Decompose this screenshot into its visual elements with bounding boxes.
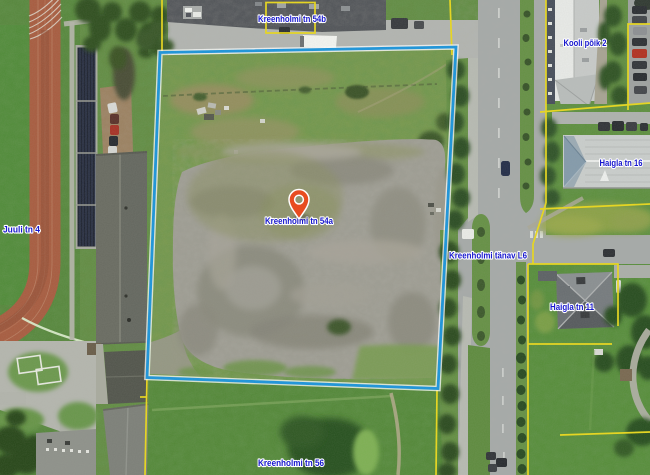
svg-text:Kooli põik 2: Kooli põik 2	[564, 38, 607, 48]
svg-text:Kreenholmi tn 54b: Kreenholmi tn 54b	[258, 14, 326, 24]
svg-text:Juuli tn 4: Juuli tn 4	[3, 225, 40, 235]
svg-text:Haigla tn 16: Haigla tn 16	[600, 158, 643, 168]
svg-text:Kreenholmi tn 56: Kreenholmi tn 56	[258, 458, 324, 468]
svg-text:Kreenholmi tänav L6: Kreenholmi tänav L6	[449, 251, 527, 261]
svg-text:Haigla tn 11: Haigla tn 11	[550, 302, 594, 312]
